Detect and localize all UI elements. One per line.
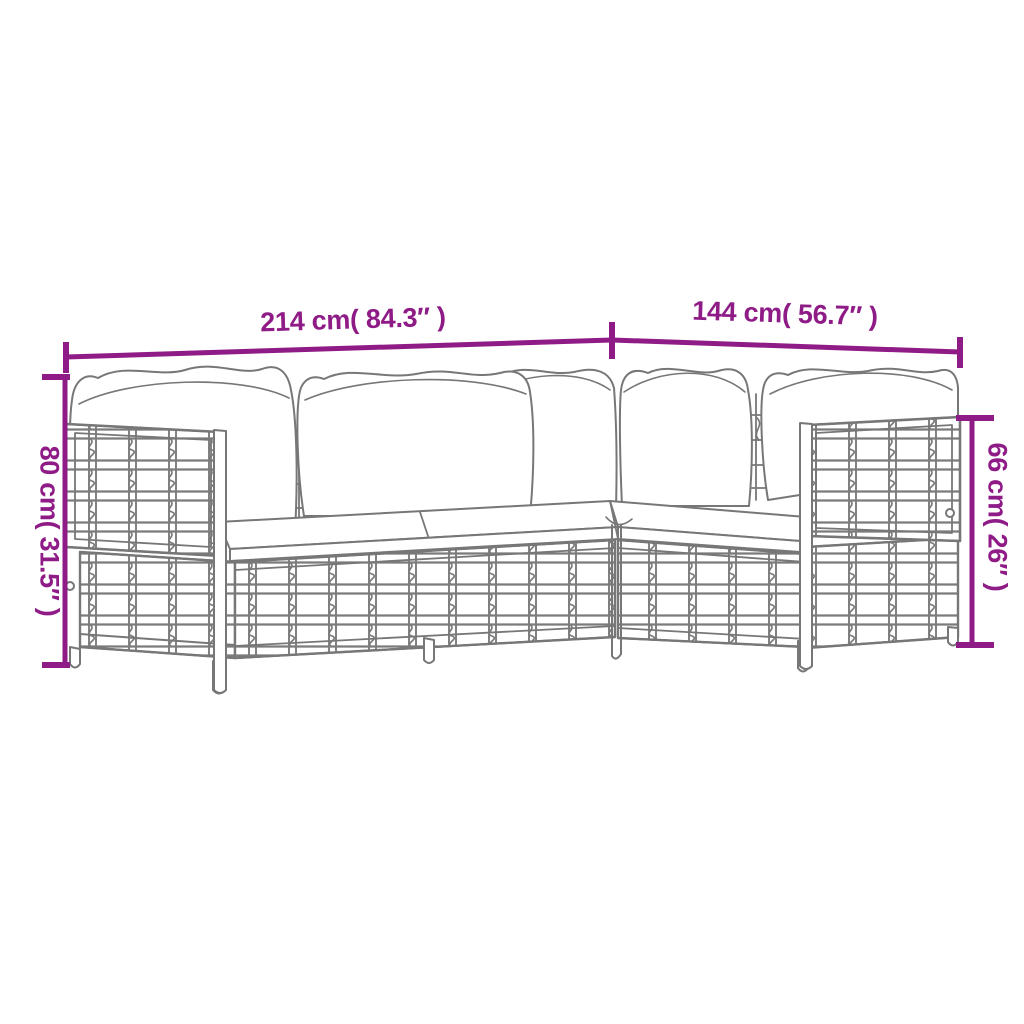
dim-depth-line bbox=[612, 337, 960, 368]
dim-depth-label: 144 cm( 56.7″ ) bbox=[692, 298, 878, 331]
back-cushion bbox=[620, 369, 752, 506]
dim-arm-height-label: 66 cm( 26″ ) bbox=[984, 443, 1011, 592]
sofa-sketch bbox=[66, 367, 960, 694]
dim-width-label: 214 cm( 84.3″ ) bbox=[260, 304, 446, 337]
product-dimension-diagram: 214 cm( 84.3″ ) 144 cm( 56.7″ ) 80 cm( 3… bbox=[0, 0, 1024, 1024]
back-cushion bbox=[297, 371, 533, 516]
sofa-illustration bbox=[0, 0, 1024, 1024]
dim-back-height-label: 80 cm( 31.5″ ) bbox=[36, 446, 63, 617]
